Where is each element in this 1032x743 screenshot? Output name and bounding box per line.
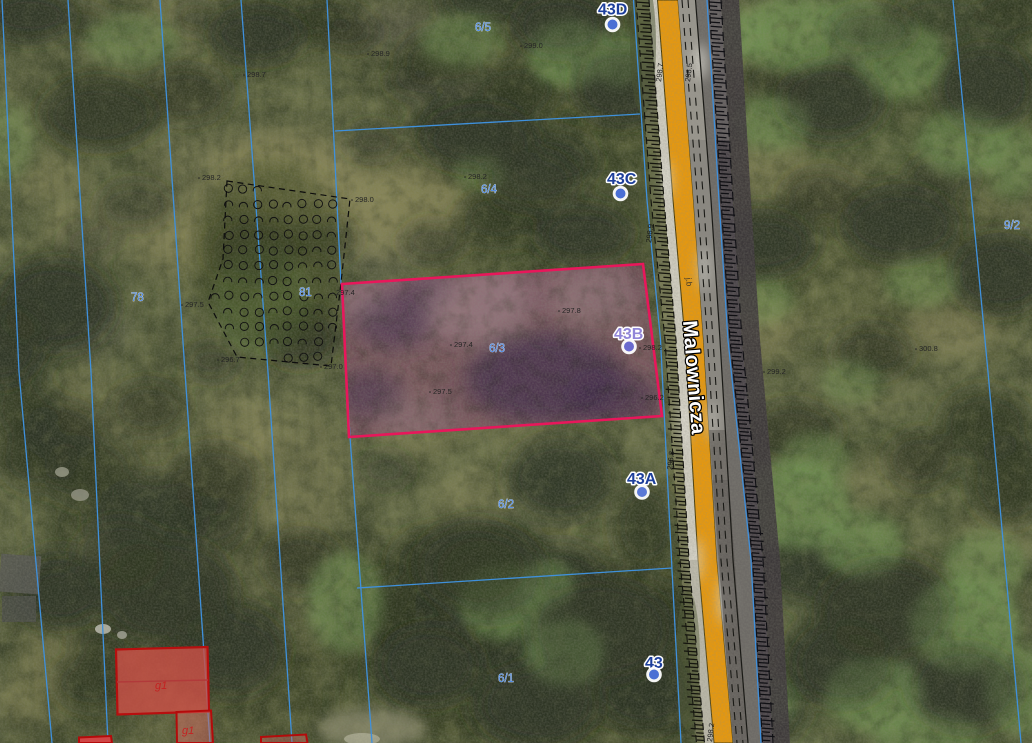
svg-text:81: 81	[299, 287, 312, 299]
svg-text:43D: 43D	[598, 2, 627, 19]
svg-text:298.2: 298.2	[468, 172, 487, 181]
svg-text:296.2: 296.2	[645, 393, 664, 402]
svg-text:296.7: 296.7	[221, 355, 240, 364]
svg-text:299.2: 299.2	[767, 367, 786, 376]
svg-text:6/1: 6/1	[498, 673, 514, 685]
svg-text:298.2: 298.2	[643, 343, 662, 352]
svg-text:298.0: 298.0	[355, 195, 374, 204]
svg-text:297.4: 297.4	[454, 340, 473, 349]
svg-text:297.4: 297.4	[336, 288, 355, 297]
svg-text:9/2: 9/2	[1004, 220, 1020, 232]
svg-text:299.0: 299.0	[524, 41, 543, 50]
svg-text:298.7: 298.7	[247, 70, 266, 79]
svg-text:78: 78	[131, 292, 144, 304]
svg-text:6/5: 6/5	[475, 22, 491, 34]
svg-text:300.8: 300.8	[919, 344, 938, 353]
svg-text:297.8: 297.8	[562, 306, 581, 315]
svg-text:297.0: 297.0	[324, 362, 343, 371]
svg-text:6/2: 6/2	[498, 499, 514, 511]
svg-text:298.2: 298.2	[202, 173, 221, 182]
svg-text:297.5: 297.5	[185, 300, 204, 309]
svg-text:6/3: 6/3	[489, 343, 505, 355]
svg-text:298.9: 298.9	[371, 49, 390, 58]
svg-text:g1: g1	[182, 725, 194, 737]
svg-text:297.5: 297.5	[433, 387, 452, 396]
svg-text:43C: 43C	[607, 171, 637, 188]
svg-text:g1: g1	[155, 680, 167, 692]
svg-text:6/4: 6/4	[481, 184, 498, 196]
svg-text:j.b: j.b	[684, 276, 694, 287]
